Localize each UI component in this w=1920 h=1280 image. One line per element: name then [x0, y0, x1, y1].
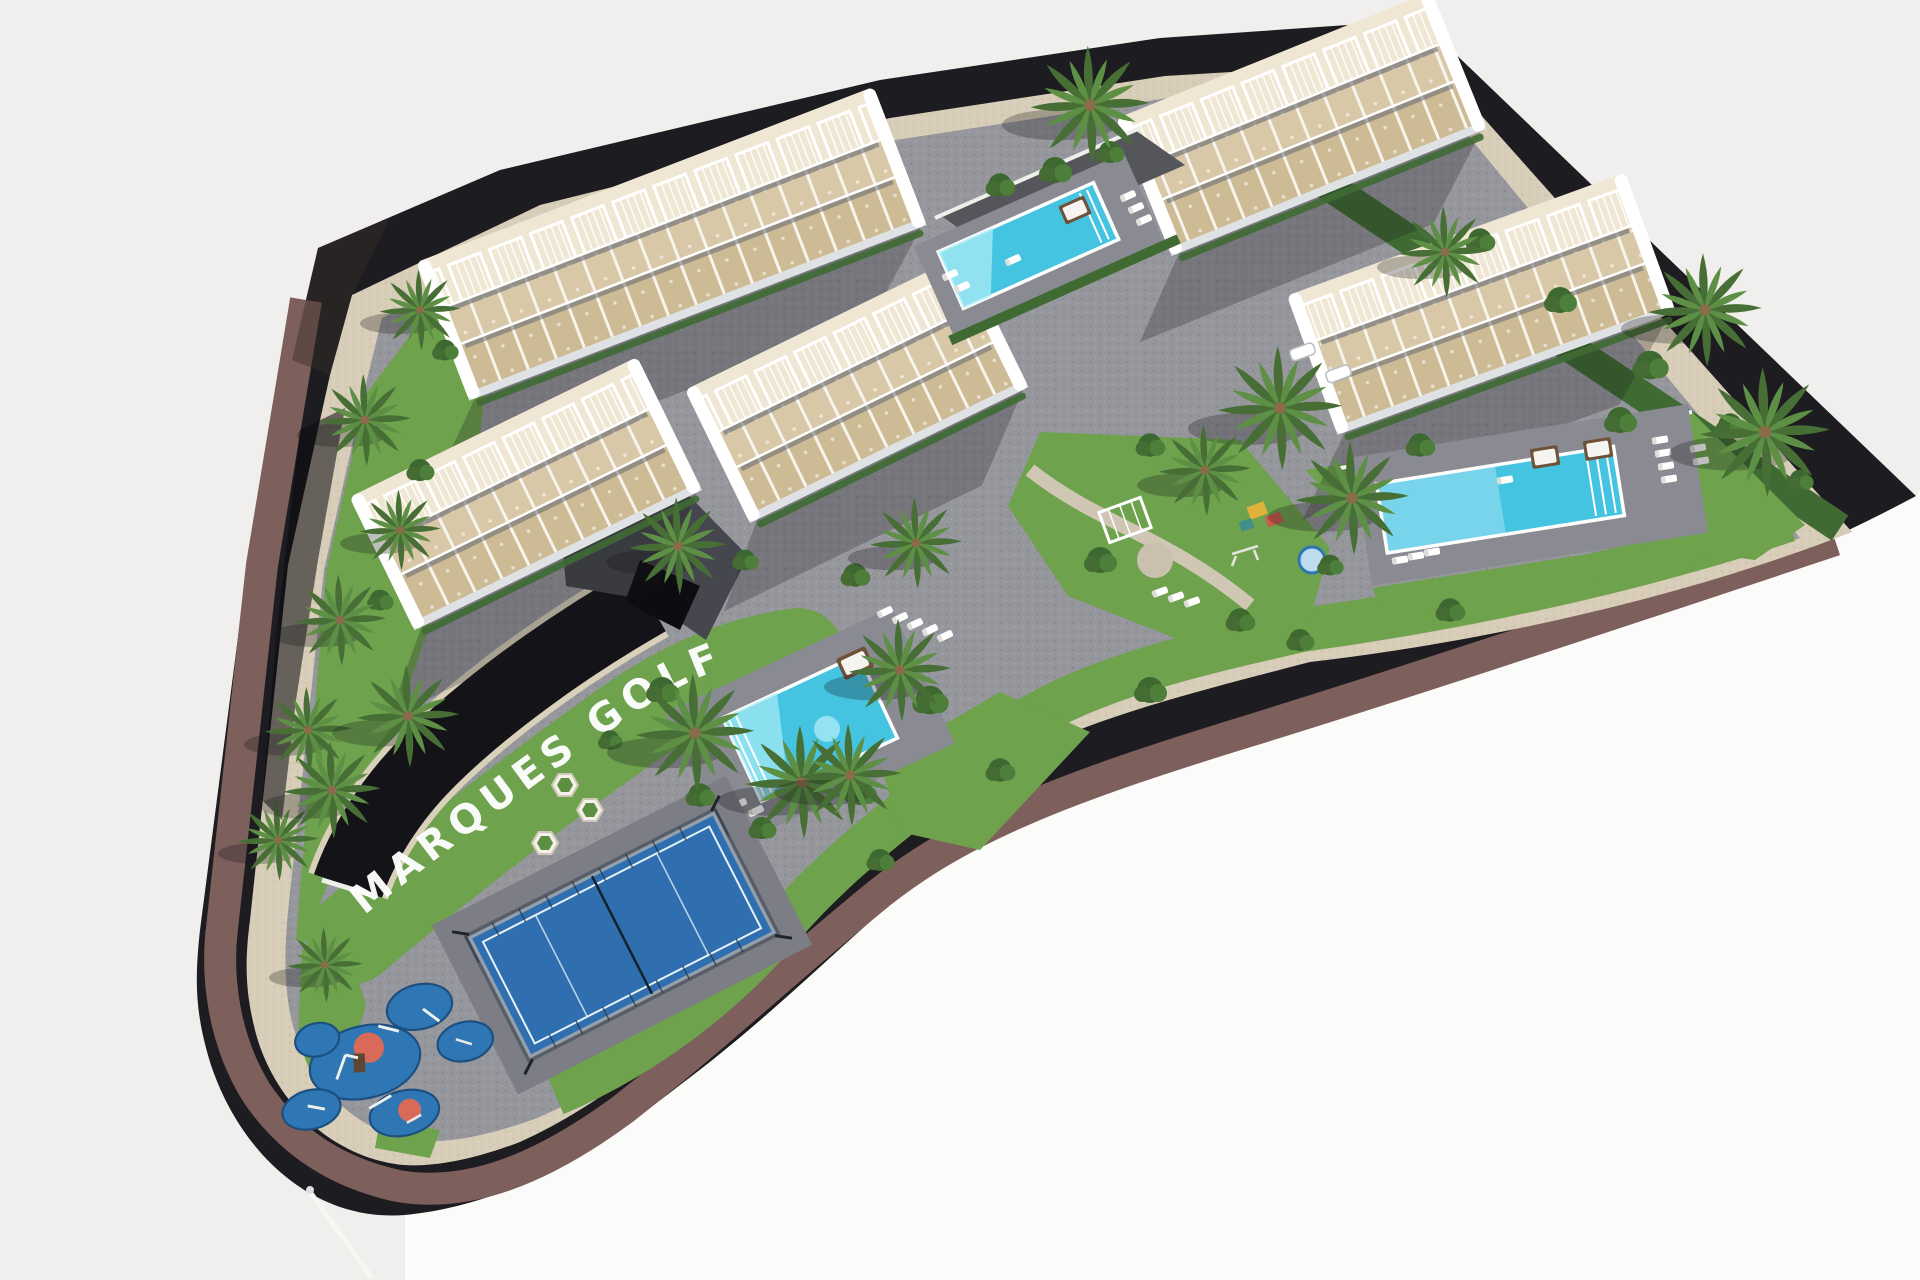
hex-planter [532, 832, 558, 854]
render-canvas: Aerial 3D render of the Marques Golf res… [0, 0, 1920, 1280]
aerial-render: Aerial 3D render of the Marques Golf res… [0, 0, 1920, 1280]
garden-plaza [1137, 542, 1173, 578]
hex-planter [577, 799, 603, 821]
lamp-head [306, 1186, 314, 1194]
